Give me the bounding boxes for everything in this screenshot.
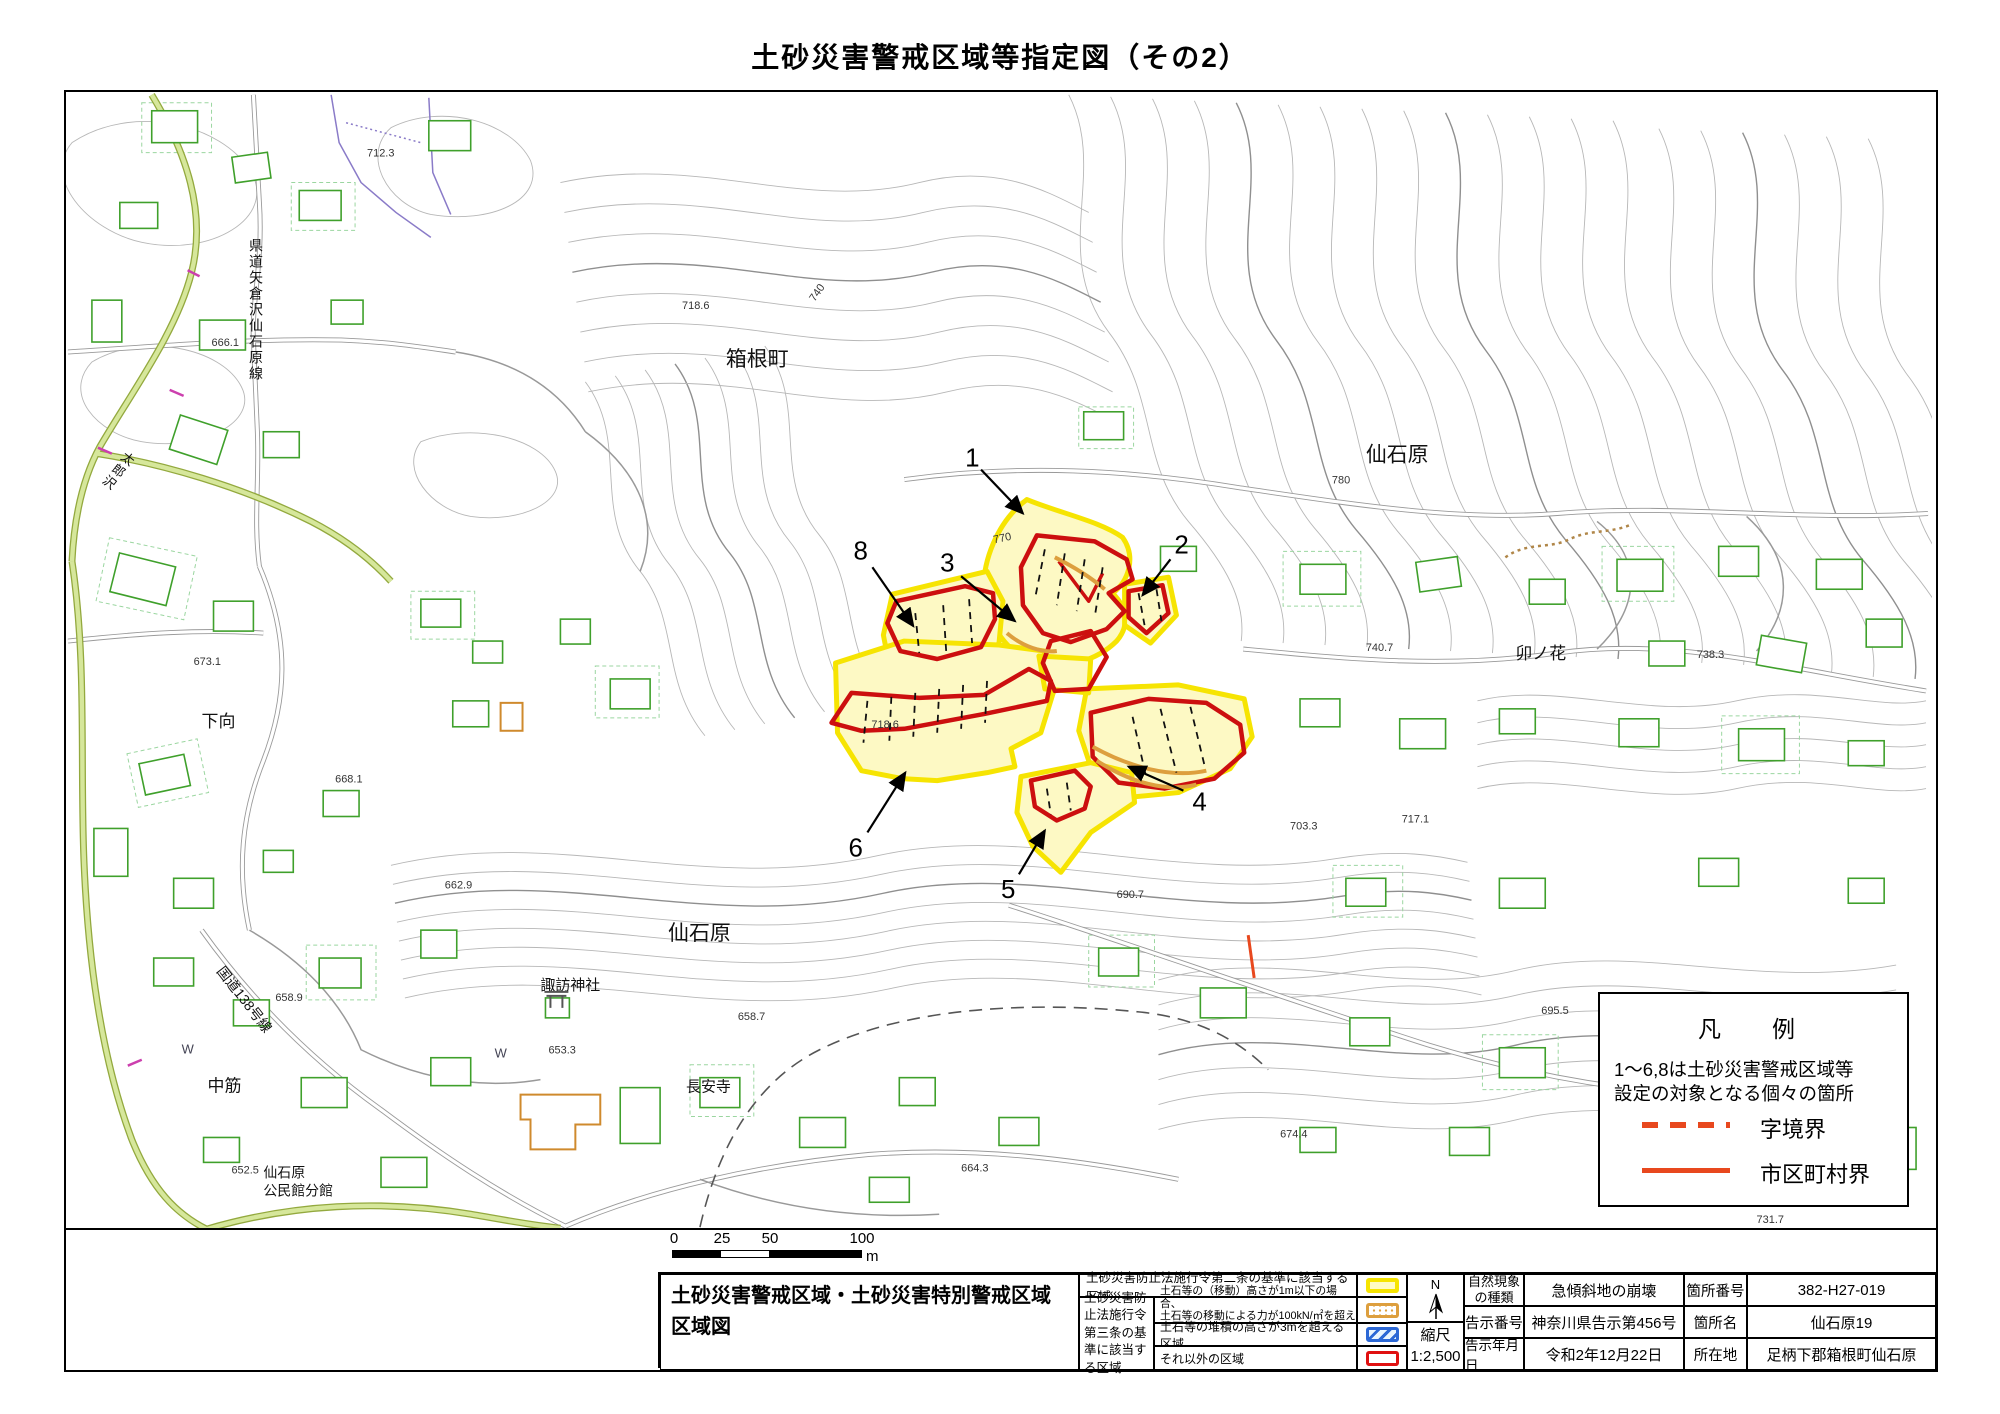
aza-boundary-label: 字境界 xyxy=(1760,1112,1826,1144)
north-label: N xyxy=(1431,1277,1440,1292)
elev-653-3: 653.3 xyxy=(548,1045,575,1057)
elev-690-7: 690.7 xyxy=(1117,889,1144,901)
label-sengokuhara-s: 仙石原 xyxy=(668,922,731,945)
elev-652-5: 652.5 xyxy=(231,1164,258,1176)
aza-boundary-symbol xyxy=(1642,1122,1730,1128)
law3-row2-desc: 土石等の堆積の高さが3mを超える区域 xyxy=(1154,1323,1357,1346)
municipal-boundary-symbol xyxy=(1642,1168,1730,1173)
aza-boundary-line xyxy=(700,1007,1268,1227)
label-sengokuhara-ne: 仙石原 xyxy=(1366,444,1429,467)
legend-box: 凡 例 1～6,8は土砂災害警戒区域等 設定の対象となる個々の箇所 字境界 市区… xyxy=(1598,992,1909,1207)
elev-717-1: 717.1 xyxy=(1402,813,1429,825)
north-cell: N xyxy=(1407,1274,1464,1322)
label-shimomukai: 下向 xyxy=(202,712,236,731)
yellow-zone-swatch xyxy=(1366,1278,1399,1293)
label-hakone: 箱根町 xyxy=(726,348,789,371)
elev-673-1: 673.1 xyxy=(194,656,221,668)
well-mark-2: W xyxy=(495,1046,508,1061)
map-sheet-title-cell: 土砂災害警戒区域・土砂災害特別警戒区域 区域図 xyxy=(660,1274,1079,1370)
elev-662-9: 662.9 xyxy=(445,879,472,891)
law3-group-label: 土砂災害防止法施行令第三条の基準に該当する区域 xyxy=(1079,1297,1154,1370)
scale-value: 1:2,500 xyxy=(1410,1346,1460,1367)
elev-658-7: 658.7 xyxy=(738,1011,765,1023)
location-label: 所在地 xyxy=(1684,1338,1747,1370)
notice-number-value: 神奈川県告示第456号 xyxy=(1524,1306,1684,1338)
notice-date-label: 告示年月日 xyxy=(1464,1338,1524,1370)
legend-title: 凡 例 xyxy=(1600,1010,1907,1044)
elev-740-7: 740.7 xyxy=(1366,642,1393,654)
law3-row3-desc: それ以外の区域 xyxy=(1154,1346,1357,1370)
elev-731-7: 731.7 xyxy=(1757,1214,1784,1226)
label-kendo-road: 県道矢倉沢仙石原線 xyxy=(246,238,266,382)
elev-703-3: 703.3 xyxy=(1290,820,1317,832)
swatch-cell-blue xyxy=(1357,1323,1407,1346)
sheet-title-line1: 土砂災害警戒区域・土砂災害特別警戒区域 xyxy=(671,1281,1051,1312)
elev-666-1: 666.1 xyxy=(212,337,239,349)
elev-738-3: 738.3 xyxy=(1697,649,1724,661)
blue-zone-swatch xyxy=(1366,1327,1399,1342)
legend-note-line2: 設定の対象となる個々の箇所 xyxy=(1614,1082,1907,1106)
site-number-value: 382-H27-019 xyxy=(1747,1274,1936,1306)
site-number-label: 箇所番号 xyxy=(1684,1274,1747,1306)
scale-tick-100: 100 xyxy=(849,1230,874,1247)
scale-tick-50: 50 xyxy=(762,1230,779,1247)
scale-unit: m xyxy=(866,1248,879,1265)
site-name-value: 仙石原19 xyxy=(1747,1306,1936,1338)
elev-658-9: 658.9 xyxy=(275,992,302,1004)
north-arrow-icon xyxy=(1425,1292,1447,1320)
swatch-cell-red xyxy=(1357,1346,1407,1370)
site-number-2: 2 xyxy=(1174,531,1188,559)
hazard-map-sheet: { "title": "土砂災害警戒区域等指定図（その2）", "colors"… xyxy=(0,0,2000,1414)
site-number-6: 6 xyxy=(848,834,862,862)
sheet-title-line2: 区域図 xyxy=(671,1312,1051,1343)
site-number-3: 3 xyxy=(940,549,954,577)
label-kominkan-2: 公民館分館 xyxy=(263,1182,333,1198)
scale-tick-25: 25 xyxy=(714,1230,731,1247)
legend-note-line1: 1～6,8は土砂災害警戒区域等 xyxy=(1614,1058,1907,1082)
scale-cell: 縮尺 1:2,500 xyxy=(1407,1322,1464,1370)
elev-712-3: 712.3 xyxy=(367,148,394,160)
elev-668-1: 668.1 xyxy=(335,774,362,786)
title-block-table: 土砂災害警戒区域・土砂災害特別警戒区域 区域図 土砂災害防止法施行令第二条の基準… xyxy=(658,1272,1936,1368)
contour-780: 780 xyxy=(1332,475,1350,487)
well-mark-1: W xyxy=(182,1042,195,1057)
municipal-boundary-label: 市区町村界 xyxy=(1760,1157,1870,1189)
red-zone-swatch xyxy=(1366,1351,1399,1366)
label-kominkan-1: 仙石原 xyxy=(263,1164,305,1180)
elev-674-4: 674.4 xyxy=(1280,1128,1307,1140)
site-number-1: 1 xyxy=(965,445,979,473)
elev-664-3: 664.3 xyxy=(961,1162,988,1174)
scale-label: 縮尺 xyxy=(1420,1325,1450,1346)
site-number-8: 8 xyxy=(853,537,867,565)
site-name-label: 箇所名 xyxy=(1684,1306,1747,1338)
phenomenon-value: 急傾斜地の崩壊 xyxy=(1524,1274,1684,1306)
trail-dotted xyxy=(1505,525,1629,557)
notice-date-value: 令和2年12月22日 xyxy=(1524,1338,1684,1370)
orange-zone-swatch xyxy=(1366,1303,1399,1318)
page-title: 土砂災害警戒区域等指定図（その2） xyxy=(0,36,2000,76)
elev-718-6b: 718.6 xyxy=(871,719,898,731)
elev-718-6: 718.6 xyxy=(682,300,709,312)
scale-tick-0: 0 xyxy=(670,1230,678,1247)
site-number-5: 5 xyxy=(1001,876,1015,904)
swatch-cell-orange xyxy=(1357,1297,1407,1323)
label-unohana: 卯ノ花 xyxy=(1515,644,1566,663)
phenomenon-label: 自然現象の種類 xyxy=(1464,1274,1524,1306)
contour-740: 740 xyxy=(807,282,827,304)
law3-row1-desc-line1: 土石等の（移動）高さが1m以下の場合、 xyxy=(1160,1285,1356,1310)
scale-bar-graphic xyxy=(672,1250,862,1258)
elev-695-5: 695.5 xyxy=(1541,1005,1568,1017)
site-number-4: 4 xyxy=(1192,789,1206,817)
swatch-cell-yellow xyxy=(1357,1274,1407,1297)
label-choanji: 長安寺 xyxy=(686,1079,731,1096)
label-nakasuji: 中筋 xyxy=(208,1077,242,1096)
map-neatline xyxy=(66,1228,1936,1230)
location-value: 足柄下郡箱根町仙石原 xyxy=(1747,1338,1936,1370)
